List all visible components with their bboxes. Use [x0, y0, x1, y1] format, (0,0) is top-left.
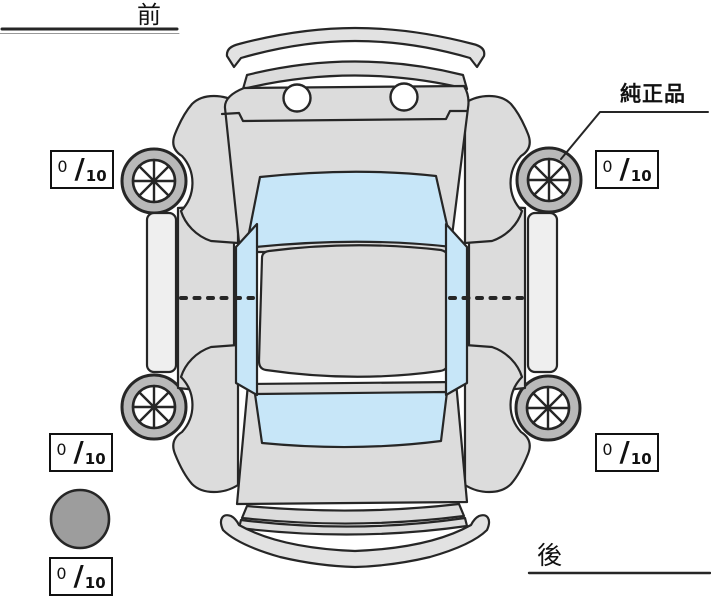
tread-max: 10 [631, 167, 652, 185]
fraction-slash: / [75, 152, 85, 185]
tread-value: 0 [57, 157, 67, 176]
fraction-slash: / [620, 152, 630, 185]
tread-value: 0 [56, 564, 66, 583]
tread-depth-box-front-left: 0 / 10 [50, 150, 114, 189]
headlight-right-icon [391, 84, 418, 111]
front-grille-band [243, 62, 467, 90]
car-top-view-canvas [0, 0, 711, 600]
wheel-rear-left-icon [122, 375, 186, 439]
roof-panel [259, 245, 449, 377]
wheel-front-left-icon [122, 149, 186, 213]
fraction-slash: / [74, 435, 84, 468]
headlight-left-icon [284, 85, 311, 112]
tread-depth-box-front-right: 0 / 10 [595, 150, 659, 189]
tread-max: 10 [85, 574, 106, 592]
fraction-slash: / [74, 559, 84, 592]
tread-max: 10 [85, 450, 106, 468]
tread-value: 0 [602, 157, 612, 176]
front-label: 前 [137, 3, 161, 27]
tread-max: 10 [631, 450, 652, 468]
rocker-panel-right [528, 213, 557, 372]
fraction-slash: / [620, 435, 630, 468]
side-window-left [236, 224, 257, 395]
vehicle-inspection-diagram: 前 純正品 後 0 / 10 0 / 10 0 / 10 0 / 10 0 / … [0, 0, 711, 600]
side-window-right [446, 224, 467, 395]
rear-label: 後 [537, 543, 562, 568]
rear-window [255, 392, 447, 447]
windshield [246, 172, 452, 248]
tread-depth-box-rear-left: 0 / 10 [49, 433, 113, 472]
tread-depth-box-spare: 0 / 10 [49, 557, 113, 596]
tread-value: 0 [602, 440, 612, 459]
genuine-parts-label: 純正品 [620, 84, 686, 105]
spare-tire-icon [51, 490, 109, 548]
wheel-front-right-icon [517, 148, 581, 212]
tread-value: 0 [56, 440, 66, 459]
tread-depth-box-rear-right: 0 / 10 [595, 433, 659, 472]
rocker-panel-left [147, 213, 176, 372]
tread-max: 10 [86, 167, 107, 185]
trunk-lid-band-upper [242, 504, 464, 524]
